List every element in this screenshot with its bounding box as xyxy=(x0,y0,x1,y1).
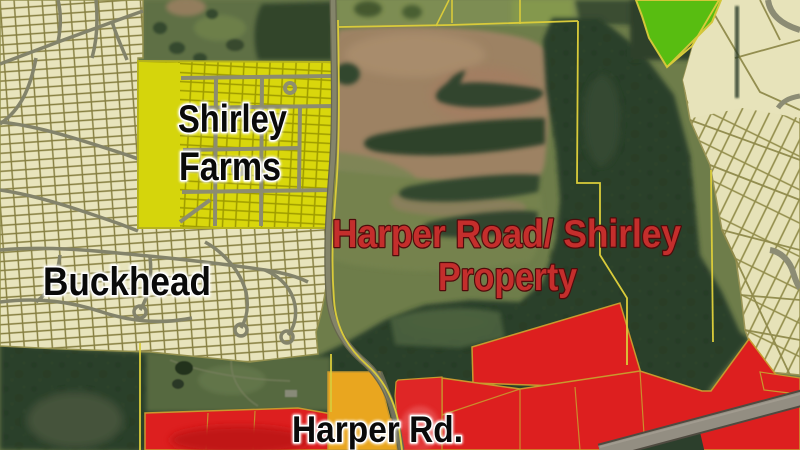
svg-text:Harper Rd.: Harper Rd. xyxy=(292,409,463,450)
svg-text:Farms: Farms xyxy=(179,145,281,189)
svg-text:Property: Property xyxy=(438,256,578,299)
svg-text:Harper Road/ Shirley: Harper Road/ Shirley xyxy=(332,213,681,256)
svg-text:Buckhead: Buckhead xyxy=(43,260,211,304)
svg-text:Shirley: Shirley xyxy=(178,98,287,141)
